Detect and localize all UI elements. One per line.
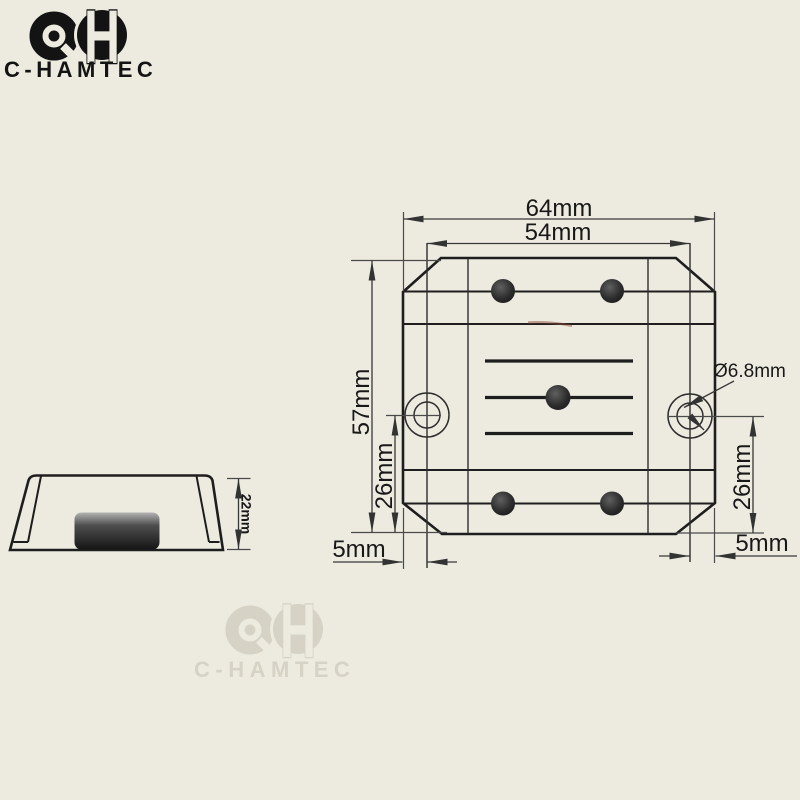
dimension-edge-to-hole-right: 5mm — [659, 508, 797, 563]
dimension-hole-to-base-left: 26mm — [371, 416, 441, 533]
screw-center — [546, 385, 571, 410]
technical-drawing: 64mm 54mm 57mm 26mm 26mm — [0, 0, 800, 800]
watermark-h-letter: H — [280, 599, 316, 663]
dim-label-side-height: 22mm — [239, 494, 255, 534]
dim-label-hole-to-base-left: 26mm — [371, 443, 398, 510]
dim-label-edge-to-hole-right: 5mm — [735, 530, 788, 557]
watermark-c-dot — [245, 625, 256, 636]
watermark-brand-name: C-HAMTEC — [194, 659, 355, 681]
dim-label-edge-to-hole-left: 5mm — [332, 536, 385, 563]
dimension-side-height: 22mm — [227, 479, 255, 550]
dimension-hole-span: 54mm — [427, 219, 690, 246]
screw-bottom-right — [600, 492, 624, 516]
screw-top-left — [491, 279, 515, 303]
dim-label-hole-span: 54mm — [525, 219, 592, 246]
screw-top-right — [600, 279, 624, 303]
screw-bottom-left — [491, 492, 515, 516]
dim-label-hole-to-base-right: 26mm — [729, 444, 756, 511]
dim-label-overall-width: 64mm — [526, 195, 593, 222]
dim-label-hole-diameter: Ø6.8mm — [713, 361, 786, 382]
dim-label-overall-height: 57mm — [348, 369, 375, 436]
side-view: 22mm — [10, 476, 255, 551]
side-connector-slot — [75, 513, 160, 550]
top-view — [403, 243, 715, 568]
watermark-logo: H — [220, 599, 330, 663]
watermark-logo-mark: H — [232, 599, 326, 663]
